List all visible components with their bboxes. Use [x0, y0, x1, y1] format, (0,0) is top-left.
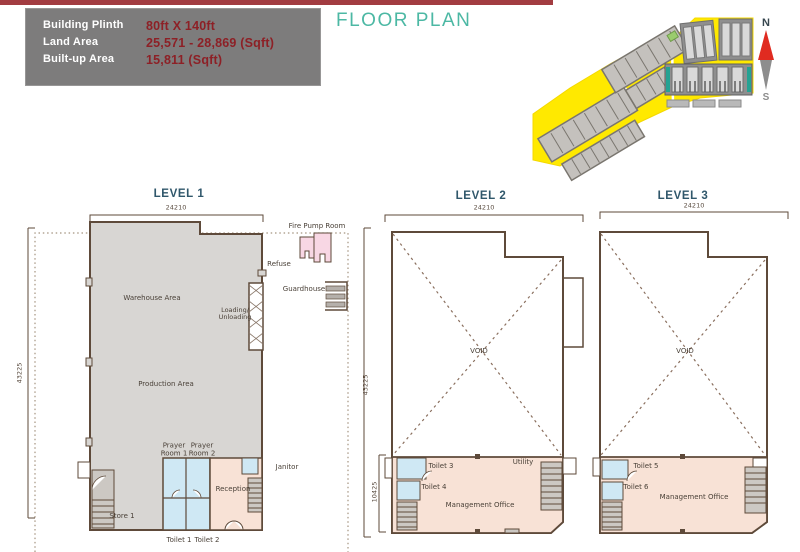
spec-value: 15,811 (Sqft)	[146, 53, 222, 67]
level2-width-dim: 24210	[474, 204, 495, 211]
loading-unloading-label: Loading/ Unloading	[219, 307, 252, 321]
level3-title: LEVEL 3	[658, 190, 709, 202]
width-dimension-bracket	[600, 212, 788, 219]
refuse-label: Refuse	[267, 261, 291, 269]
utility-label: Utility	[513, 459, 534, 467]
level2-office-dim: 10425	[371, 482, 378, 503]
toilet6-room	[602, 482, 623, 500]
spec-label: Built-up Area	[43, 53, 146, 67]
toilet3-room	[397, 458, 426, 479]
site-highlighted-row	[665, 64, 752, 95]
stairs-right	[248, 478, 262, 512]
toilet4-room	[397, 481, 420, 500]
stairs-right	[541, 458, 576, 510]
guardhouse-label: Guardhouse	[283, 286, 325, 294]
toilet2-label: Toilet 2	[195, 537, 220, 545]
level2-plan	[355, 200, 605, 552]
production-area-label: Production Area	[138, 381, 194, 389]
page-title: FLOOR PLAN	[336, 10, 471, 32]
floor-plan-page: Building Plinth 80ft X 140ft Land Area 2…	[0, 0, 800, 552]
height-dimension-bracket	[28, 228, 35, 518]
prayer-room1-label: Prayer Room 1	[161, 442, 188, 457]
spec-row: Land Area 25,571 - 28,869 (Sqft)	[43, 36, 320, 50]
compass-south-label: S	[763, 92, 770, 103]
level2-management-office-label: Management Office	[446, 502, 515, 510]
toilet3-label: Toilet 3	[429, 463, 454, 471]
prayer-room2-label: Prayer Room 2	[189, 442, 216, 457]
store1-label: Store 1	[109, 513, 134, 521]
level1-title: LEVEL 1	[154, 188, 205, 200]
level3-width-dim: 24210	[684, 202, 705, 209]
spec-value: 25,571 - 28,869 (Sqft)	[146, 36, 274, 50]
toilet-prayer-block	[163, 458, 210, 530]
compass: N S	[748, 14, 784, 102]
site-plan-map	[525, 5, 785, 170]
refuse-fire-pump-structures	[300, 233, 331, 262]
warehouse-area-label: Warehouse Area	[123, 295, 180, 303]
compass-south-arrow-icon	[760, 60, 772, 90]
level2-void-label: VOID	[470, 348, 488, 356]
compass-north-label: N	[762, 17, 770, 29]
spec-label: Land Area	[43, 36, 146, 50]
toilet1-label: Toilet 1	[167, 537, 192, 545]
toilet4-label: Toilet 4	[422, 484, 447, 492]
janitor-room	[242, 458, 258, 474]
width-dimension-bracket	[90, 215, 263, 222]
spec-label: Building Plinth	[43, 19, 146, 33]
level2-height-dim: 43225	[362, 375, 369, 396]
level1-width-dim: 24210	[166, 204, 187, 211]
spec-value: 80ft X 140ft	[146, 19, 215, 33]
level1-height-dim: 43225	[16, 363, 23, 384]
site-building-cluster	[680, 20, 717, 63]
janitor-label: Janitor	[276, 464, 299, 472]
spec-row: Built-up Area 15,811 (Sqft)	[43, 53, 320, 67]
width-dimension-bracket	[385, 215, 583, 222]
level3-void-label: VOID	[676, 348, 694, 356]
fire-pump-room-label: Fire Pump Room	[289, 223, 346, 231]
level3-management-office-label: Management Office	[660, 494, 729, 502]
level2-title: LEVEL 2	[456, 190, 507, 202]
building-specs-box: Building Plinth 80ft X 140ft Land Area 2…	[25, 8, 321, 86]
top-accent-line	[0, 0, 553, 5]
level1-plan	[20, 200, 360, 552]
guardhouse-structure	[325, 282, 347, 310]
reception-label: Reception	[216, 486, 251, 494]
toilet6-label: Toilet 6	[624, 484, 649, 492]
compass-north-arrow-icon	[758, 30, 774, 60]
site-small-strips	[667, 100, 741, 107]
toilet5-label: Toilet 5	[634, 463, 659, 471]
toilet5-room	[602, 460, 628, 479]
spec-row: Building Plinth 80ft X 140ft	[43, 19, 320, 33]
